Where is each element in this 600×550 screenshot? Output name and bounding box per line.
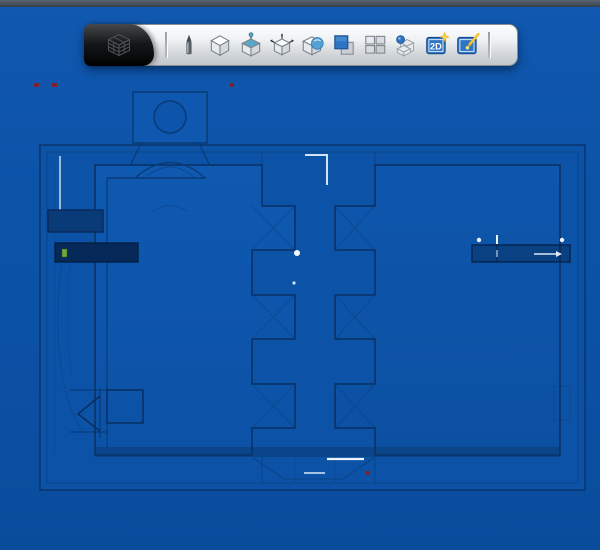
view-axes-button[interactable]	[266, 29, 297, 61]
note-callout[interactable]	[55, 243, 138, 262]
image-pen-icon	[455, 32, 481, 58]
view-pin-button[interactable]	[235, 29, 266, 61]
sheet-2d-star-icon: 2D	[424, 32, 450, 58]
selection-block[interactable]	[48, 210, 103, 232]
app-window: 2D	[0, 0, 600, 550]
note-green-icon	[62, 249, 67, 257]
toolbar-separator	[488, 32, 491, 58]
view-isometric-button[interactable]	[204, 29, 235, 61]
svg-text:2D: 2D	[430, 42, 442, 52]
dimension-handle[interactable]	[560, 238, 564, 242]
new-2d-sheet-button[interactable]: 2D	[421, 29, 452, 61]
view-toolbar: 2D	[84, 24, 518, 66]
shaded-overlay-button[interactable]	[328, 29, 359, 61]
dimension-handle[interactable]	[477, 238, 481, 242]
cube-rotate-icon	[300, 32, 326, 58]
cube-pin-icon	[238, 32, 264, 58]
view-rotate-button[interactable]	[297, 29, 328, 61]
toolbar-separator	[165, 32, 168, 58]
cube-axes-icon	[269, 32, 295, 58]
image-markup-button[interactable]	[452, 29, 483, 61]
app-logo-tab[interactable]	[84, 24, 154, 66]
vertex-point[interactable]	[294, 250, 300, 256]
iso-cube-icon	[207, 32, 233, 58]
cad-viewport[interactable]	[0, 0, 600, 550]
wireframe-cube-logo-icon	[105, 31, 133, 59]
components-button[interactable]	[390, 29, 421, 61]
pen-icon	[176, 32, 202, 58]
markup-pen-button[interactable]	[173, 29, 204, 61]
viewport-grid-button[interactable]	[359, 29, 390, 61]
four-panes-icon	[362, 32, 388, 58]
overlapping-squares-icon	[331, 32, 357, 58]
cube-stack-sphere-icon	[393, 32, 419, 58]
